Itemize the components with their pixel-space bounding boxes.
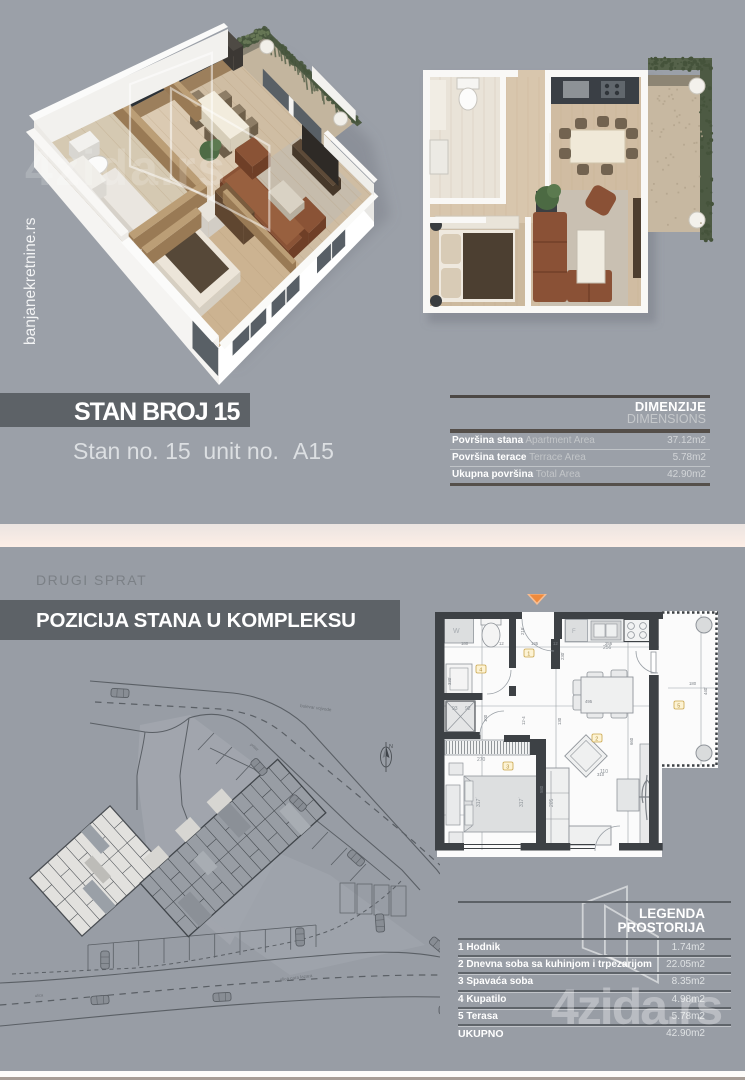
- svg-text:330´: 330´: [447, 676, 452, 685]
- svg-text:3: 3: [506, 765, 509, 771]
- svg-text:180: 180: [461, 641, 469, 646]
- svg-text:205: 205: [549, 798, 555, 807]
- svg-text:256: 256: [605, 641, 613, 646]
- svg-text:270: 270: [477, 757, 486, 763]
- svg-text:180: 180: [689, 681, 697, 686]
- svg-text:100: 100: [483, 714, 488, 722]
- svg-text:ulica cara lazara: ulica cara lazara: [280, 973, 314, 982]
- svg-text:135: 135: [531, 641, 539, 646]
- svg-text:310: 310: [597, 772, 605, 777]
- svg-text:5: 5: [677, 704, 680, 710]
- svg-text:230´: 230´: [560, 651, 565, 660]
- svg-text:495: 495: [585, 699, 593, 704]
- svg-text:bulevar vojvode: bulevar vojvode: [300, 703, 332, 712]
- svg-text:1: 1: [527, 652, 530, 658]
- svg-text:W: W: [453, 628, 460, 635]
- svg-text:prilaz: prilaz: [249, 742, 260, 752]
- svg-text:580: 580: [539, 785, 544, 793]
- svg-text:ulica: ulica: [35, 992, 44, 998]
- svg-text:440´: 440´: [703, 686, 708, 695]
- svg-text:93: 93: [452, 706, 458, 712]
- svg-text:660: 660: [629, 737, 634, 745]
- svg-text:130: 130: [557, 717, 562, 725]
- svg-text:2: 2: [595, 737, 598, 743]
- svg-text:92: 92: [465, 706, 471, 712]
- svg-text:N: N: [389, 744, 393, 750]
- svg-text:12: 12: [553, 641, 558, 646]
- svg-text:317´: 317´: [519, 797, 525, 807]
- svg-text:4: 4: [479, 668, 482, 674]
- svg-text:317´: 317´: [476, 797, 482, 807]
- svg-text:218´: 218´: [520, 626, 525, 635]
- svg-text:12: 12: [499, 641, 504, 646]
- svg-text:F: F: [572, 629, 576, 635]
- svg-text:12-4: 12-4: [521, 716, 526, 725]
